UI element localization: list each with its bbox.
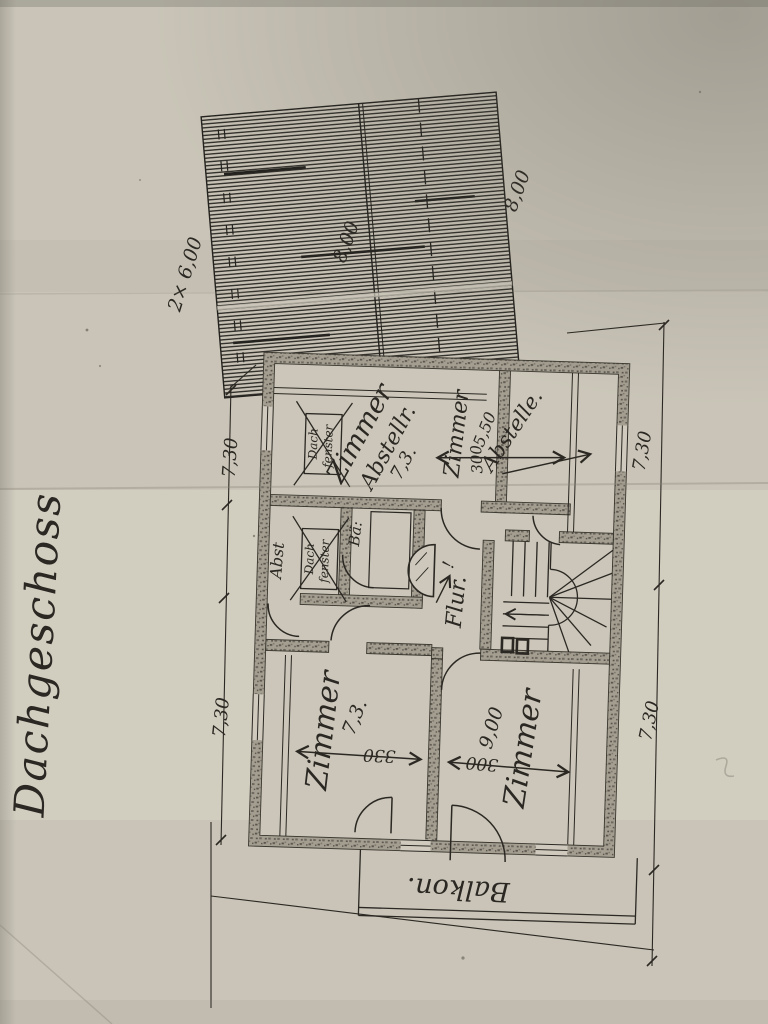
window-bottom-right xyxy=(535,843,567,857)
paper-top-edge xyxy=(0,0,768,7)
wall-h2b xyxy=(559,532,613,545)
balkon-label: Balkon. xyxy=(406,871,512,907)
window-left-lower xyxy=(251,694,265,740)
dachfenster2-line2: fenster xyxy=(317,538,332,584)
room-abst-label: Abst xyxy=(266,541,288,581)
room-se-width: 300 xyxy=(465,752,499,775)
room-bad-label: Bä: xyxy=(345,520,366,548)
floorplan-drawing: 2× 6,00 8,00 8,00 xyxy=(0,0,768,1024)
window-bottom-left xyxy=(400,839,430,853)
wall-h2a xyxy=(505,530,529,542)
dachfenster2-line1: Dach xyxy=(302,543,317,576)
wall-h4a xyxy=(266,639,329,652)
room-sw-width: 330 xyxy=(362,744,396,766)
wall-h4b xyxy=(367,643,432,656)
scanned-floorplan-page: 2× 6,00 8,00 8,00 xyxy=(0,0,768,1024)
paper-bottom-edge xyxy=(0,1000,768,1024)
dim-left-bottom: 7,30 xyxy=(209,696,234,738)
wall-h5a xyxy=(431,648,442,659)
